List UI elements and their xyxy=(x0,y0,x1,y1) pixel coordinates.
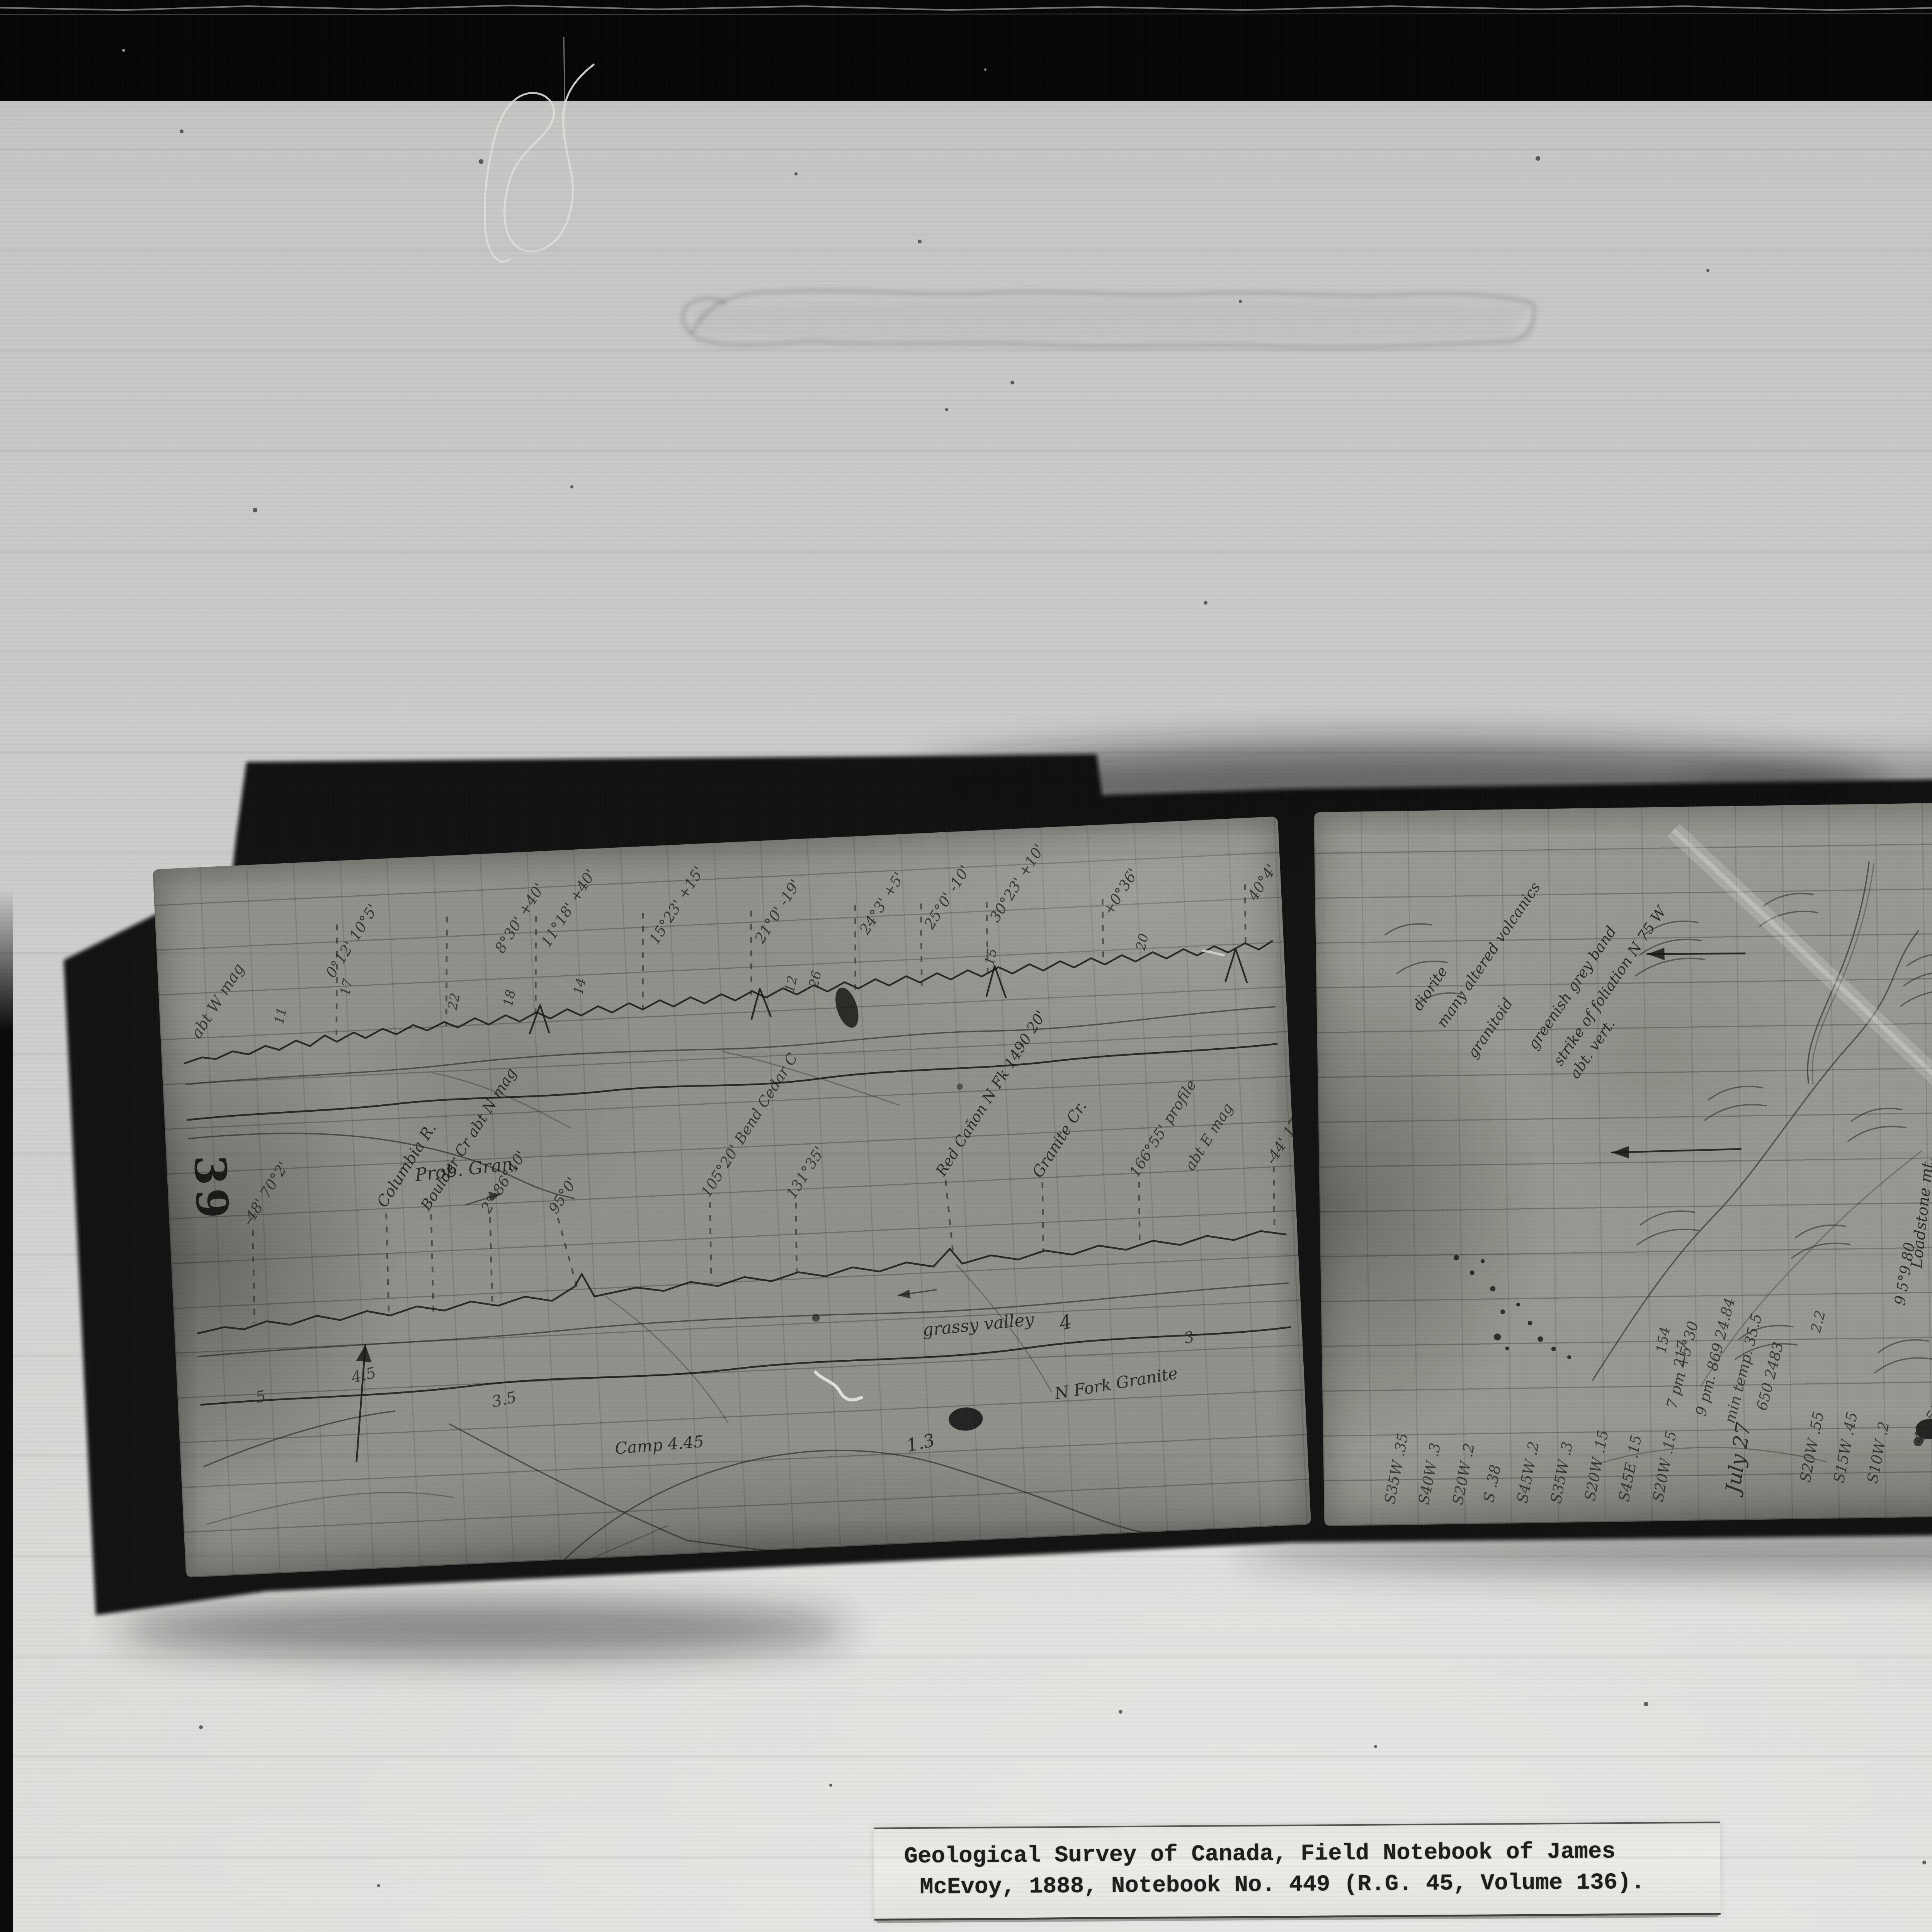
arrow-left-icon xyxy=(1612,1146,1629,1159)
svg-text:grassy valley: grassy valley xyxy=(922,1310,1035,1340)
archive-label-line1: Geological Survey of Canada, Field Noteb… xyxy=(904,1838,1616,1869)
svg-text:N Fork Granite: N Fork Granite xyxy=(1053,1364,1179,1403)
svg-text:45-550 170: 45-550 170 xyxy=(1909,1362,1932,1447)
svg-text:S20W .2: S20W .2 xyxy=(1449,1442,1478,1506)
archive-label: Geological Survey of Canada, Field Noteb… xyxy=(874,1821,1721,1920)
svg-text:22: 22 xyxy=(445,992,464,1012)
svg-text:95°0': 95°0' xyxy=(545,1174,581,1217)
meteorological-notes: 7 pm +5°30 9 pm. 869 24.84 min temp. 35.… xyxy=(1662,1294,1830,1426)
svg-text:Granite Cr.: Granite Cr. xyxy=(1029,1098,1090,1181)
svg-text:9 5°9 80: 9 5°9 80 xyxy=(1891,1241,1918,1306)
svg-text:S20W .15: S20W .15 xyxy=(1581,1429,1612,1502)
svg-text:abt W mag: abt W mag xyxy=(187,960,248,1041)
svg-text:20: 20 xyxy=(1133,932,1152,952)
svg-text:abt E mag: abt E mag xyxy=(1181,1100,1236,1173)
svg-text:14: 14 xyxy=(570,976,589,996)
svg-text:Camp 4.45: Camp 4.45 xyxy=(614,1432,704,1458)
svg-text:S40W .3: S40W .3 xyxy=(1415,1441,1444,1506)
moraine-dots xyxy=(1454,1253,1571,1361)
svg-text:2.2: 2.2 xyxy=(1808,1309,1829,1335)
svg-text:S20W .55: S20W .55 xyxy=(1797,1410,1827,1484)
svg-text:S45W .2: S45W .2 xyxy=(1514,1440,1542,1505)
svg-text:S .38: S .38 xyxy=(1480,1463,1504,1504)
notebook-page-right: diorite many altered volcanics granitoid… xyxy=(1314,796,1932,1526)
svg-text:24°3' +5': 24°3' +5' xyxy=(856,869,908,938)
svg-text:26: 26 xyxy=(806,969,825,989)
svg-text:15: 15 xyxy=(982,947,1000,967)
survey-annotations-upper: abt W mag 0°12' 10°5' 8°30' +40' 11°18' … xyxy=(180,830,1286,1042)
date-heading: July 27 xyxy=(1721,1421,1755,1498)
film-edge-left xyxy=(0,889,13,1932)
svg-text:S15W .45: S15W .45 xyxy=(1830,1411,1861,1485)
svg-text:S35W .3: S35W .3 xyxy=(1547,1440,1576,1505)
svg-text:granitoid: granitoid xyxy=(1464,995,1516,1061)
film-edge-top xyxy=(0,0,1932,101)
microfilm-frame: 39 xyxy=(0,0,1932,1932)
arrow-up-icon xyxy=(355,1345,372,1363)
svg-text:11°18' +40': 11°18' +40' xyxy=(537,866,599,950)
svg-text:30°23' +10': 30°23' +10' xyxy=(986,841,1048,925)
svg-text:+0°36': +0°36' xyxy=(1100,865,1142,918)
svg-text:650 2483: 650 2483 xyxy=(1753,1340,1787,1412)
right-page-sketch: diorite many altered volcanics granitoid… xyxy=(1314,796,1932,1526)
leader-lines-lower xyxy=(249,1165,1279,1325)
svg-text:12: 12 xyxy=(782,974,801,994)
map-arrows xyxy=(1609,942,1932,1337)
svg-text:3.5: 3.5 xyxy=(490,1388,518,1411)
svg-text:S45E .15: S45E .15 xyxy=(1615,1434,1645,1503)
survey-annotations-lower: -48' 70°2' Columbia R. Boulder Cr abt N … xyxy=(231,994,1311,1232)
ink-blots xyxy=(796,980,983,1438)
svg-text:15°23' +15': 15°23' +15' xyxy=(646,864,707,947)
svg-text:25°0' -10': 25°0' -10' xyxy=(921,862,974,932)
contour-sketch xyxy=(1384,856,1932,1468)
svg-text:many altered volcanics: many altered volcanics xyxy=(1433,879,1544,1031)
svg-text:18: 18 xyxy=(500,988,519,1008)
svg-text:131°35': 131°35' xyxy=(783,1143,828,1202)
svg-text:105°20' Bend Cedar C: 105°20' Bend Cedar C xyxy=(697,1050,801,1200)
page-number: 39 xyxy=(184,1154,238,1223)
svg-text:Red Cañon N Fk 1490 20': Red Cañon N Fk 1490 20' xyxy=(932,1007,1050,1179)
svg-text:0°12' 10°5': 0°12' 10°5' xyxy=(322,901,381,981)
svg-text:154: 154 xyxy=(1653,1326,1673,1354)
left-page-sketch: abt W mag 0°12' 10°5' 8°30' +40' 11°18' … xyxy=(153,816,1311,1578)
svg-text:8°30' +40': 8°30' +40' xyxy=(492,880,548,956)
mountain-profile-lower xyxy=(192,1154,1299,1577)
film-scratch-white xyxy=(796,950,1243,1401)
svg-text:3: 3 xyxy=(1182,1328,1196,1347)
bearing-readings: S35W .35 S40W .3 S20W .2 S .38 S45W .2 S… xyxy=(1380,1409,1894,1508)
archive-label-line2: McEvoy, 1888, Notebook No. 449 (R.G. 45,… xyxy=(920,1869,1645,1900)
svg-text:1.3: 1.3 xyxy=(905,1430,937,1456)
notebook-page-left: 39 xyxy=(153,816,1311,1578)
peak-numbers: 17 18 14 12 26 15 20 11 22 xyxy=(269,932,1154,1027)
svg-text:17: 17 xyxy=(337,977,356,997)
svg-text:S20W .15: S20W .15 xyxy=(1649,1430,1680,1503)
svg-text:-48' 70°2': -48' 70°2' xyxy=(239,1158,292,1228)
svg-text:11: 11 xyxy=(271,1006,290,1026)
svg-text:40°4': 40°4' xyxy=(1244,861,1280,904)
geology-notes: diorite many altered volcanics granitoid… xyxy=(1407,877,1673,1084)
svg-text:4.5: 4.5 xyxy=(349,1364,378,1387)
svg-text:S35W .35: S35W .35 xyxy=(1381,1432,1412,1505)
svg-text:21°0' -19': 21°0' -19' xyxy=(751,876,804,946)
arrow-left-icon xyxy=(1647,948,1664,961)
arrow-left-icon xyxy=(898,1289,910,1299)
film-scratch-band xyxy=(1673,825,1932,1174)
svg-text:S10W .2: S10W .2 xyxy=(1864,1420,1893,1485)
svg-text:4: 4 xyxy=(1057,1310,1074,1335)
svg-text:5: 5 xyxy=(254,1387,267,1406)
